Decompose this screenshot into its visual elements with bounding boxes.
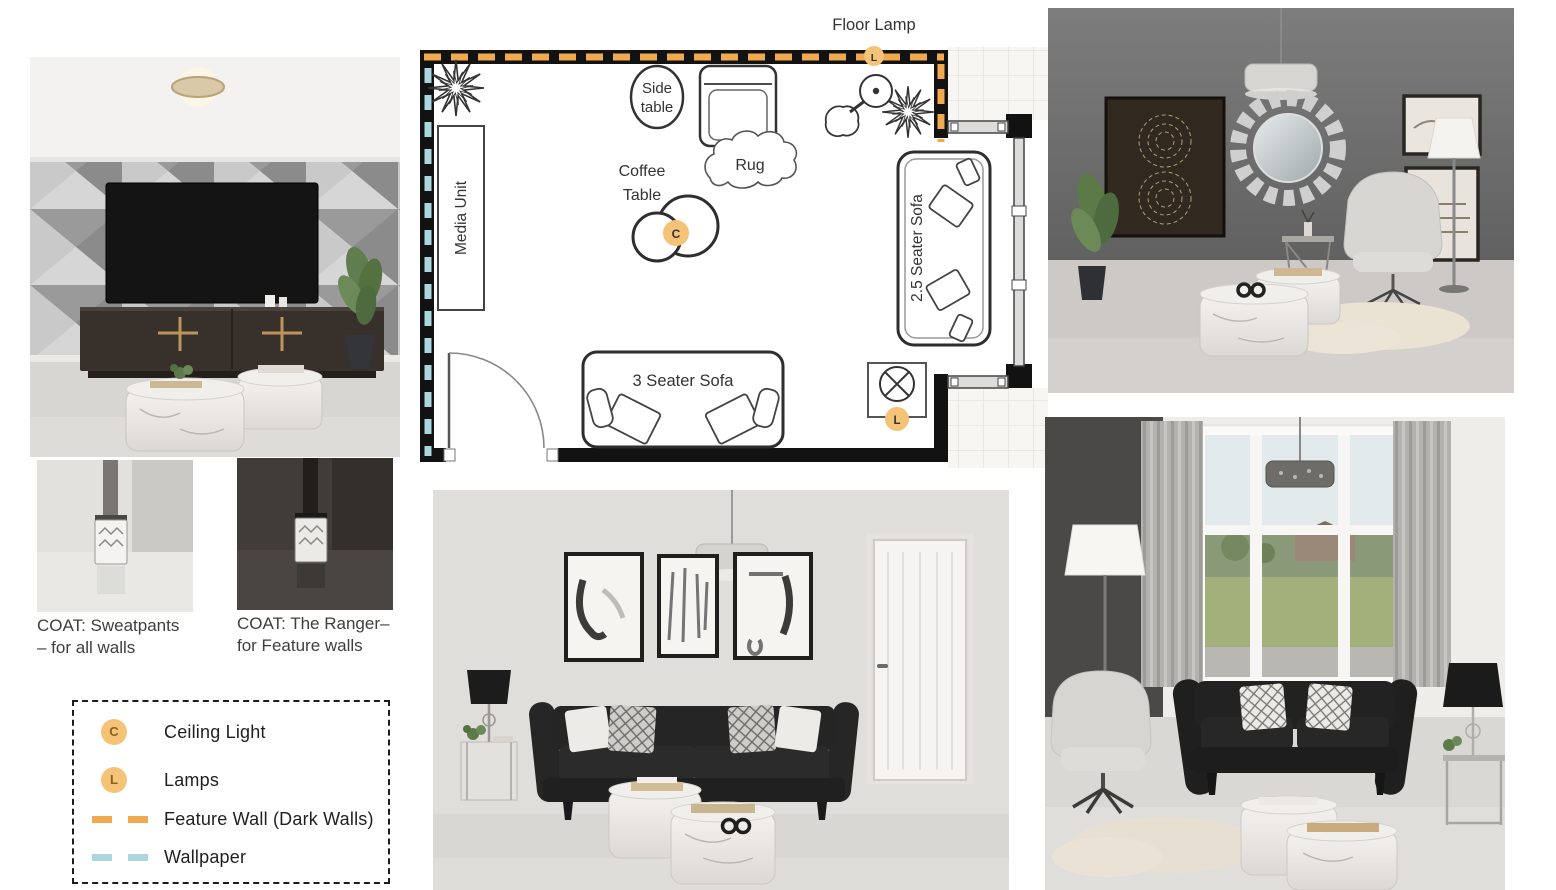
- tv-wall-scene: [30, 57, 400, 457]
- ceiling-light-badge: C: [101, 719, 127, 745]
- plant-icon: [428, 60, 484, 116]
- caption-line: – for all walls: [37, 637, 227, 659]
- door: [869, 536, 971, 782]
- legend-label: Lamps: [164, 770, 219, 791]
- ceiling: [30, 57, 400, 161]
- patterned-pillow: [727, 704, 776, 753]
- feature-wall-dash-swatch: [92, 816, 148, 823]
- ceiling-light-badge-letter: C: [672, 227, 681, 241]
- pipe: [103, 460, 118, 520]
- swatch-photo-feature-walls: [237, 458, 393, 610]
- curtain-right: [1393, 421, 1451, 687]
- photo-tv-wall: [30, 57, 400, 457]
- media-unit-label: Media Unit: [453, 180, 470, 255]
- legend-label: Feature Wall (Dark Walls): [164, 809, 374, 830]
- caption-line: COAT: The Ranger–: [237, 613, 427, 635]
- lamp-table: L: [868, 363, 926, 431]
- swatch-photo-all-walls: [37, 460, 193, 612]
- white-pillow: [564, 705, 611, 752]
- sofa-3-label: 3 Seater Sofa: [633, 372, 735, 390]
- swatch-caption-feature-walls: COAT: The Ranger– for Feature walls: [237, 613, 427, 658]
- mirror-room-scene: [1048, 8, 1514, 393]
- floor-plan: Media Unit Side table Rug: [408, 0, 1056, 480]
- lamp-badge-letter: L: [893, 415, 900, 427]
- legend-row-wallpaper: Wallpaper: [84, 842, 382, 872]
- sofa-25-label: 2.5 Seater Sofa: [909, 194, 926, 302]
- side-table: Side table: [631, 66, 683, 128]
- legend-row-feature-wall: Feature Wall (Dark Walls): [84, 804, 382, 834]
- lamp-badge: L: [101, 767, 127, 793]
- white-pillow: [774, 705, 821, 752]
- photo-black-sofa-room: [433, 490, 1009, 890]
- pipe: [303, 458, 318, 518]
- legend-label: Ceiling Light: [164, 722, 266, 743]
- tv: [106, 183, 318, 303]
- legend-row-ceiling-light: C Ceiling Light: [84, 717, 382, 747]
- mood-board: Media Unit Side table Rug: [0, 0, 1556, 890]
- curtain-left: [1141, 421, 1203, 687]
- window-room-scene: [1045, 417, 1505, 890]
- floor-lamp-icon: [826, 75, 892, 136]
- legend-label: Wallpaper: [164, 847, 246, 868]
- caption-line: for Feature walls: [237, 635, 427, 657]
- media-cabinet: [80, 295, 384, 378]
- coffee-table: C Coffee Table: [619, 163, 718, 261]
- gallery-frames: [566, 554, 811, 660]
- side-table-label-2: table: [641, 99, 674, 116]
- swatch-caption-all-walls: COAT: Sweatpants – for all walls: [37, 615, 227, 660]
- rug-label: Rug: [735, 157, 764, 174]
- photo-mirror-room: [1048, 8, 1514, 393]
- black-sofa-scene: [433, 490, 1009, 890]
- photo-window-room: [1045, 417, 1505, 890]
- wallpaper-dash-swatch: [92, 854, 148, 861]
- caption-line: COAT: Sweatpants: [37, 615, 227, 637]
- legend: C Ceiling Light L Lamps Feature Wall (Da…: [72, 700, 390, 884]
- lamp-badge-top-letter: L: [871, 52, 878, 64]
- door-handle: [877, 664, 888, 668]
- floor-plan-drawing: Media Unit Side table Rug: [408, 0, 1056, 480]
- door: [444, 353, 558, 461]
- media-unit: Media Unit: [438, 126, 484, 310]
- abstract-art: [1106, 98, 1224, 236]
- paint-can: [95, 515, 127, 594]
- legend-row-lamps: L Lamps: [84, 765, 382, 795]
- paint-can: [295, 513, 327, 588]
- floor-lamp-label: Floor Lamp: [832, 16, 915, 34]
- patterned-pillow: [1305, 683, 1353, 731]
- patterned-pillow: [1239, 683, 1287, 731]
- coffee-table-label-1: Coffee: [619, 163, 666, 180]
- sofa-3-seater: 3 Seater Sofa: [583, 352, 783, 447]
- patterned-pillow: [607, 704, 656, 753]
- coffee-table-label-2: Table: [623, 187, 661, 204]
- side-table-label-1: Side: [642, 80, 672, 97]
- sofa-25-seater: 2.5 Seater Sofa: [898, 152, 990, 345]
